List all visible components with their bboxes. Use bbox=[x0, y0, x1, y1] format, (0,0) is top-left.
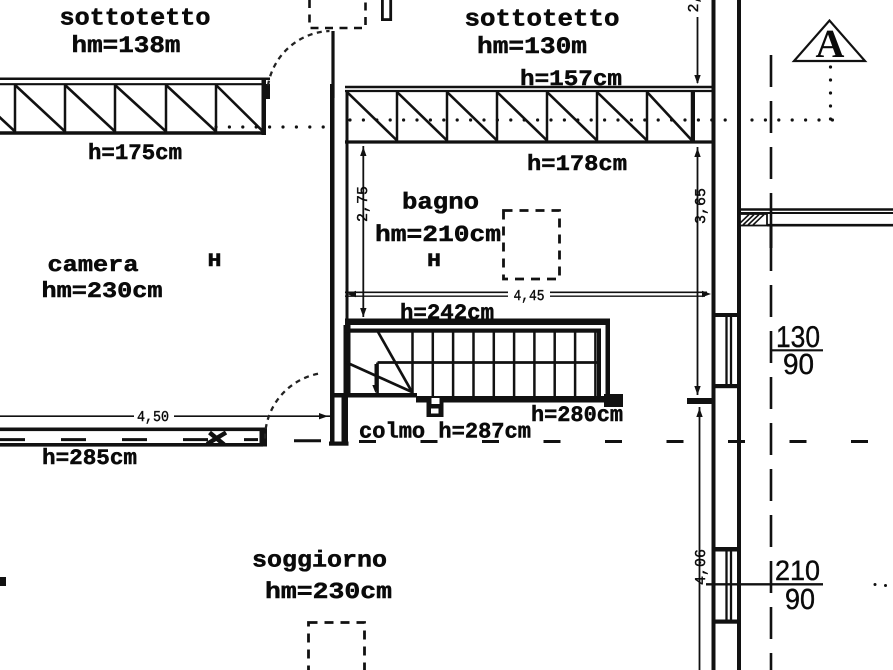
svg-text:90: 90 bbox=[783, 349, 814, 381]
svg-text:hm=210cm: hm=210cm bbox=[375, 222, 501, 248]
svg-text:2,75: 2,75 bbox=[355, 186, 372, 222]
svg-text:soggiorno: soggiorno bbox=[252, 548, 387, 574]
svg-text:hm=130m: hm=130m bbox=[477, 34, 587, 61]
svg-text:H: H bbox=[427, 250, 441, 272]
svg-text:h=178cm: h=178cm bbox=[527, 152, 627, 177]
svg-text:2,0: 2,0 bbox=[686, 0, 703, 13]
svg-text:hm=230cm: hm=230cm bbox=[265, 579, 392, 605]
svg-text:sottotetto: sottotetto bbox=[60, 6, 211, 33]
svg-text:h=285cm: h=285cm bbox=[42, 446, 137, 471]
svg-text:A: A bbox=[816, 21, 845, 66]
svg-text:bagno: bagno bbox=[402, 190, 479, 216]
svg-text:colmo h=287cm: colmo h=287cm bbox=[359, 420, 531, 445]
svg-text:hm=230cm: hm=230cm bbox=[42, 279, 163, 304]
svg-text:h=280cm: h=280cm bbox=[531, 403, 623, 428]
svg-text:4,06: 4,06 bbox=[693, 549, 710, 585]
svg-text:4,50: 4,50 bbox=[137, 409, 169, 426]
svg-text:camera: camera bbox=[48, 253, 139, 278]
svg-text:h=175cm: h=175cm bbox=[88, 141, 182, 166]
svg-text:hm=138m: hm=138m bbox=[72, 33, 181, 60]
svg-text:4,45: 4,45 bbox=[514, 288, 545, 305]
svg-text:90: 90 bbox=[785, 584, 815, 616]
svg-text:3,65: 3,65 bbox=[693, 188, 710, 224]
svg-text:sottotetto: sottotetto bbox=[465, 7, 620, 34]
svg-text:h=242cm: h=242cm bbox=[400, 301, 494, 326]
svg-text:210: 210 bbox=[775, 555, 820, 586]
svg-text:H: H bbox=[208, 250, 222, 272]
